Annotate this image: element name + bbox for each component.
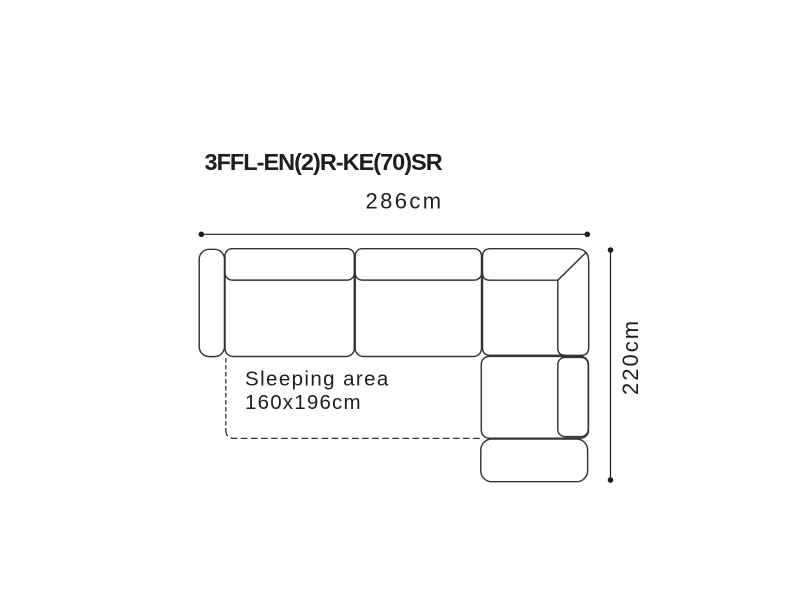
svg-text:Sleeping area: Sleeping area <box>245 367 390 390</box>
svg-text:220cm: 220cm <box>618 319 643 395</box>
svg-text:286cm: 286cm <box>365 188 443 213</box>
svg-text:3FFL-EN(2)R-KE(70)SR: 3FFL-EN(2)R-KE(70)SR <box>205 149 443 175</box>
svg-text:160x196cm: 160x196cm <box>245 391 362 414</box>
